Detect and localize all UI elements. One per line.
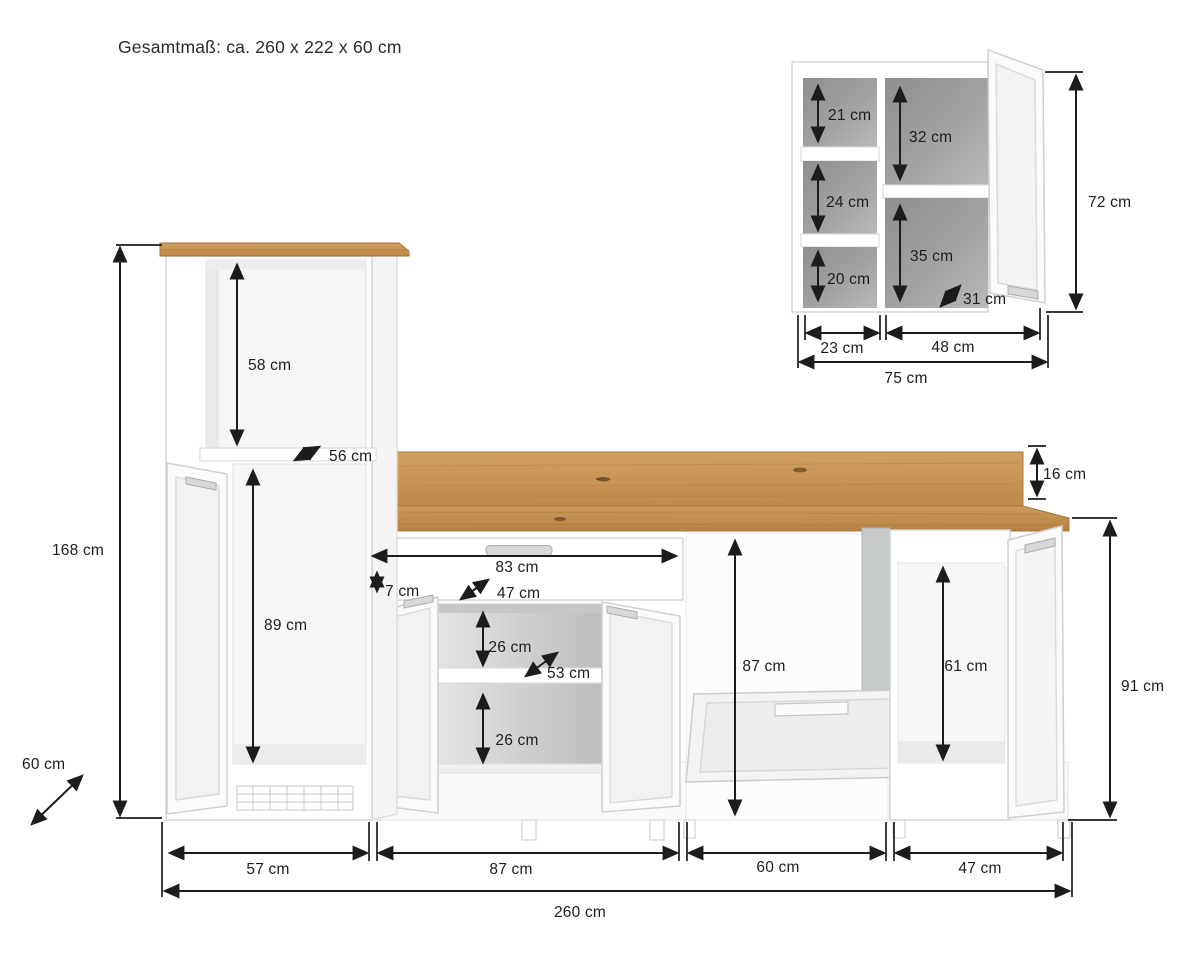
kitchen-dimension-diagram: 21 cm 24 cm 20 cm 32 cm 35 cm 31 cm 72 c…: [0, 0, 1200, 959]
microwave-niche: [206, 260, 366, 448]
dim-label-wall-right-top: 32 cm: [909, 129, 952, 146]
page-title: Gesamtmaß: ca. 260 x 222 x 60 cm: [118, 37, 402, 57]
dim-label-section1-width: 57 cm: [246, 861, 289, 878]
dim-label-depth: 60 cm: [22, 756, 65, 773]
dim-label-section3-width: 60 cm: [756, 859, 799, 876]
dim-label-niche-height: 58 cm: [248, 357, 291, 374]
middle-cabinet-floor: [433, 764, 625, 773]
middle-right-door-panel: [610, 611, 672, 803]
dim-label-fridge-niche-height: 89 cm: [264, 617, 307, 634]
dim-label-wall-width-total: 75 cm: [884, 370, 927, 387]
dim-label-total-width: 260 cm: [554, 904, 606, 921]
dishwasher-handle-slot: [775, 702, 848, 716]
dim-label-wall-right-bottom: 35 cm: [910, 248, 953, 265]
dim-label-dishwasher-niche-height: 87 cm: [742, 658, 785, 675]
dim-label-compartment-bottom: 26 cm: [495, 732, 538, 749]
dim-label-wall-left-mid: 24 cm: [826, 194, 869, 211]
dim-label-compartment-top: 26 cm: [488, 639, 531, 656]
dim-label-wall-left-bottom: 20 cm: [827, 271, 870, 288]
dim-label-shelf-depth: 53 cm: [547, 665, 590, 682]
wall-cabinet-door-panel: [996, 64, 1037, 290]
interior-top-shadow: [438, 604, 604, 613]
ventilation-grille: [237, 786, 353, 810]
dim-label-right-niche-height: 61 cm: [944, 658, 987, 675]
wall-shelf: [883, 185, 990, 198]
middle-cabinet-shelf: [431, 668, 628, 683]
cabinet-legs: [522, 820, 1070, 840]
dim-label-niche-depth: 56 cm: [329, 448, 372, 465]
dim-label-backsplash-height: 16 cm: [1043, 466, 1086, 483]
drawer-handle: [486, 546, 552, 556]
countertop: [368, 506, 1069, 531]
tall-unit: [160, 243, 409, 820]
dim-label-drawer-width: 83 cm: [495, 559, 538, 576]
backsplash-panel: [390, 452, 1023, 506]
wall-shelf: [801, 234, 879, 247]
base-counter-section: [362, 452, 1070, 840]
niche-left-shadow: [206, 260, 219, 448]
dim-label-drawer-front-height: 7 cm: [385, 583, 419, 600]
dim-label-wall-width-right: 48 cm: [931, 339, 974, 356]
dim-label-wall-depth: 31 cm: [963, 291, 1006, 308]
dim-label-wall-left-top: 21 cm: [828, 107, 871, 124]
tall-unit-side-panel: [372, 250, 397, 820]
support-leg: [862, 528, 890, 696]
dim-label-total-height: 168 cm: [52, 542, 104, 559]
dim-label-section4-width: 47 cm: [958, 860, 1001, 877]
right-cabinet-floor-shadow: [898, 741, 1005, 763]
fridge-door-panel: [176, 477, 219, 800]
wood-knot: [793, 468, 807, 473]
right-cabinet-door-panel: [1016, 540, 1057, 806]
dim-label-wall-width-left: 23 cm: [820, 340, 863, 357]
dim-label-section2-width: 87 cm: [489, 861, 532, 878]
niche-top-shadow: [206, 260, 366, 269]
dim-label-wall-height: 72 cm: [1088, 194, 1131, 211]
dim-label-drawer-depth: 47 cm: [497, 585, 540, 602]
dim-label-worktop-height: 91 cm: [1121, 678, 1164, 695]
wall-shelf: [801, 147, 879, 161]
wood-knot: [554, 517, 566, 521]
diagram-svg: 21 cm 24 cm 20 cm 32 cm 35 cm 31 cm 72 c…: [0, 0, 1200, 959]
